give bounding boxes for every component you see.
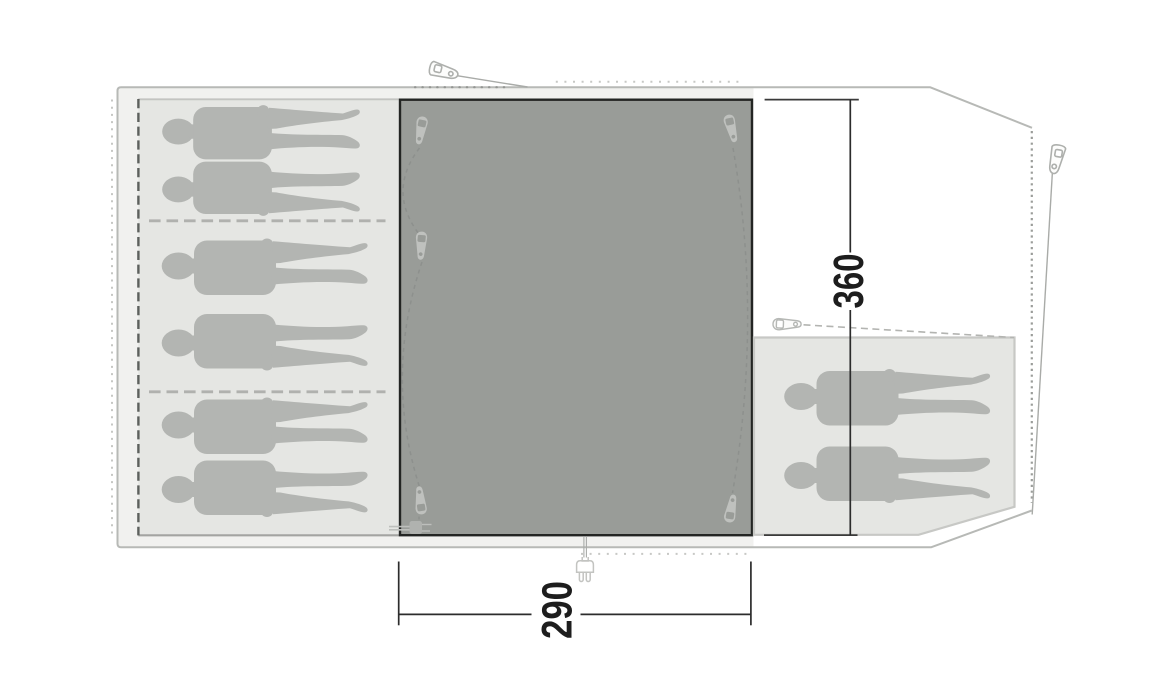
svg-text:360: 360: [825, 254, 873, 309]
svg-text:290: 290: [534, 581, 582, 639]
